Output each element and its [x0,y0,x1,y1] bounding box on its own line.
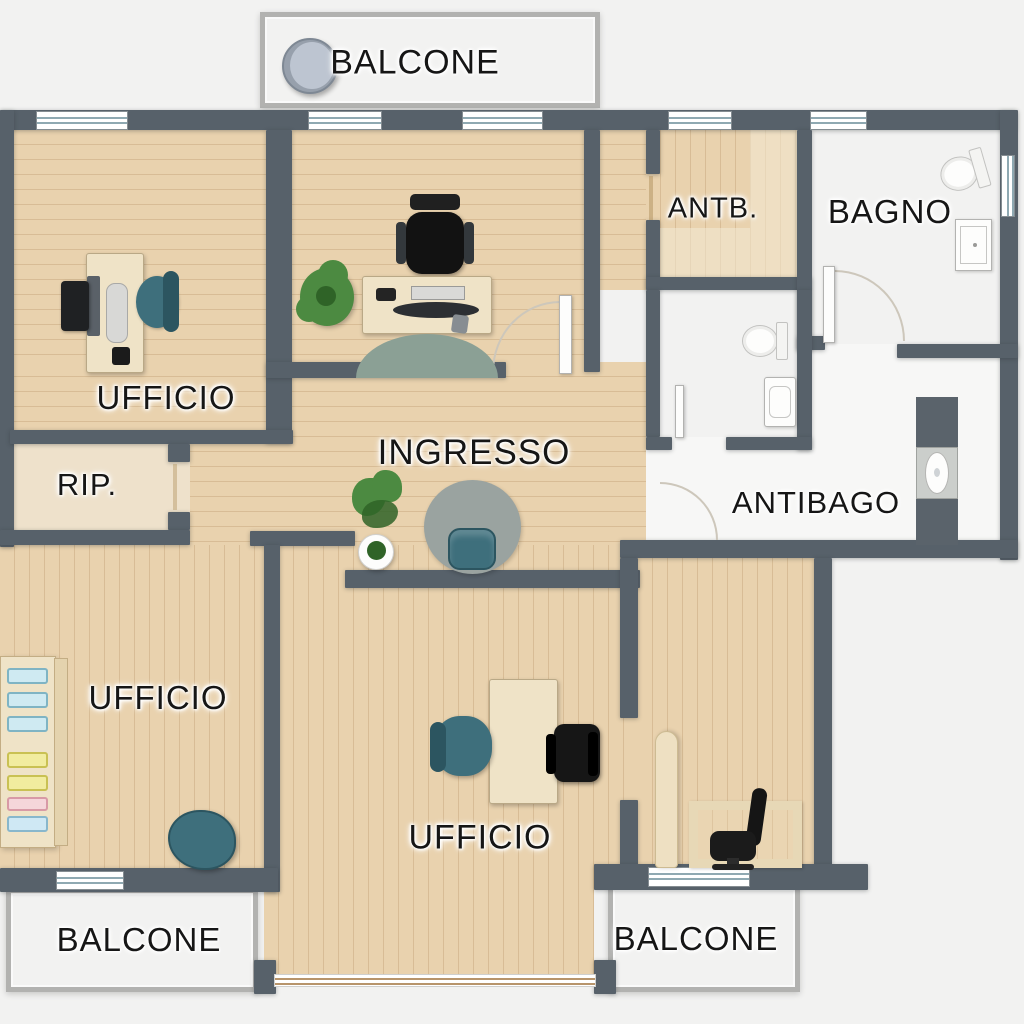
cabinet-handle [973,243,977,247]
balcony-chair-seat [290,42,334,89]
room-label-ufficio-bottom: UFFICIO [409,819,552,858]
wall-offices-divider-top [266,130,292,443]
storage-bin-yellow [7,775,48,791]
wall-bottom-offices-divider [264,545,280,892]
plant-pot-center [367,541,386,560]
room-label-ufficio-mid-left: UFFICIO [89,679,228,717]
wall-wc-top [646,277,812,290]
storage-shelf-side [54,658,68,846]
room-label-balcone-top: BALCONE [330,44,500,83]
wall-west [0,110,14,547]
office-chair-icon [168,810,236,870]
wall-center-right-divider-b [620,800,638,868]
vanity-counter-top [916,397,958,447]
wall-rip-bottom [0,530,190,545]
wall-rip-jamb-top [168,444,190,462]
floor-ufficio-bottom-lower [264,868,594,978]
wall-corridor-antb-a [646,130,660,174]
wall-office-corridor [584,130,600,372]
phone-icon [376,288,396,301]
room-label-bagno: BAGNO [828,193,952,231]
room-label-balcone-bottom-right: BALCONE [614,920,779,958]
wall-center-right-divider-a [620,558,638,718]
wall-antibago-bottom [620,540,1018,558]
wall-wc-bottom-b [726,437,812,450]
plant-center [316,286,336,306]
floor-antb-mat-low [648,228,750,277]
storage-bin-blue [7,816,48,832]
office-chair-base [712,864,754,870]
wall-bagno-bottom [897,344,1018,358]
room-label-rip: RIP. [57,467,117,503]
door-threshold-antb [649,176,653,220]
room-label-ingresso: INGRESSO [378,433,571,473]
room-label-antb: ANTB. [668,193,758,226]
storage-bin-blue [7,692,48,708]
toilet-tank [776,322,788,360]
storage-bin-blue [7,668,48,684]
window-east-bagno [1001,155,1015,217]
wall-wc-right [797,290,812,450]
monitor-icon [61,281,89,331]
window-south-right [648,867,750,887]
wall-wc-left [646,290,660,437]
door-leaf-bagno [823,266,835,343]
sliding-door-track [274,974,596,987]
room-label-balcone-bottom-left: BALCONE [57,921,222,959]
armchair-icon [448,528,496,570]
storage-bin-blue [7,716,48,732]
storage-bin-yellow [7,752,48,768]
room-label-antibago: ANTIBAGO [732,485,900,521]
floor-plan: BALCONE UFFICIO ANTB. BAGNO RIP. INGRESS… [0,0,1024,1024]
wall-rip-jamb-bottom [168,512,190,530]
wall-post-bottom-left [254,960,276,994]
executive-chair-icon [406,212,464,274]
tablet-icon [106,283,128,343]
door-leaf-office-top-center [559,295,572,374]
desk-accessory-icon [112,347,130,365]
vanity-counter-bottom [916,499,958,545]
office-chair-icon [710,831,756,861]
wall-wc-bottom-a [646,437,672,450]
executive-chair-headrest [410,194,460,210]
sink-basin [769,386,791,418]
toilet-icon [742,320,794,362]
room-label-ufficio-top-left: UFFICIO [97,379,236,417]
window-north-5 [810,111,867,130]
wall-south-left [0,868,278,892]
office-chair-arm [546,734,556,774]
window-north-4 [668,111,732,130]
wall-room-right-east [814,558,832,868]
door-leaf-open [655,731,678,868]
office-chair-back [430,722,446,772]
wall-rip-top [10,430,293,444]
sink-drain [934,468,940,477]
wall-ingresso-bottom [345,570,640,588]
office-chair-back [588,732,598,776]
monitor-icon [411,286,465,300]
wall-ingresso-step [250,531,355,546]
door-leaf-wc [675,385,684,438]
door-threshold-rip [173,464,177,510]
window-north-1 [36,111,128,130]
toilet-bowl [742,325,778,357]
window-north-2 [308,111,382,130]
executive-chair-arm-left [396,222,406,264]
executive-chair-arm-right [464,222,474,264]
desk-lamp-base [451,314,469,334]
storage-bin-pink [7,797,48,811]
window-south-left [56,871,124,890]
floor-antibago-upper [812,344,1000,440]
wall-post-bottom-right [594,960,616,994]
office-chair-back [163,271,179,332]
window-north-3 [462,111,543,130]
